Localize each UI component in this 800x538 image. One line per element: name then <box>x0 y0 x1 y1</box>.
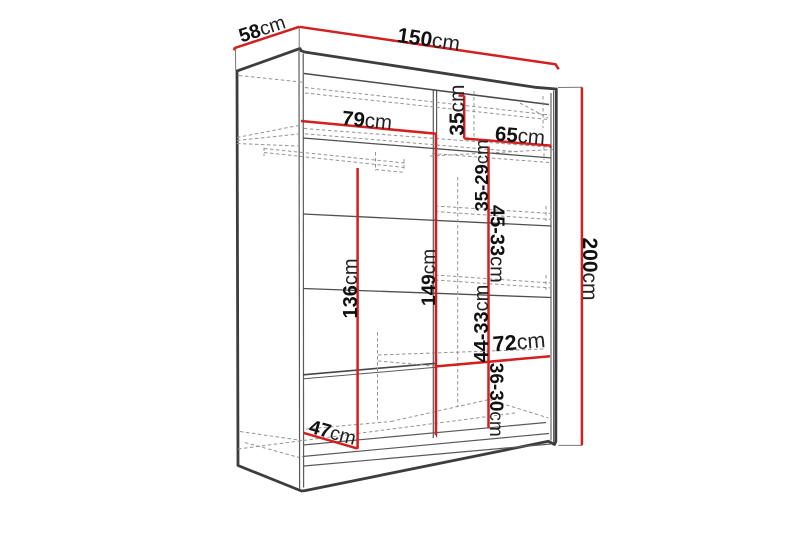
svg-text:36-30cm: 36-30cm <box>485 363 506 437</box>
svg-text:44-33cm: 44-33cm <box>471 285 493 363</box>
svg-text:35-29cm: 35-29cm <box>471 140 492 212</box>
svg-text:65cm: 65cm <box>494 122 546 149</box>
svg-text:200cm: 200cm <box>578 238 601 301</box>
svg-text:79cm: 79cm <box>341 107 393 135</box>
svg-text:72cm: 72cm <box>492 328 546 356</box>
svg-text:136cm: 136cm <box>340 258 362 318</box>
svg-text:149cm: 149cm <box>419 249 440 306</box>
svg-text:45-33cm: 45-33cm <box>486 205 508 283</box>
svg-text:35cm: 35cm <box>446 84 469 135</box>
